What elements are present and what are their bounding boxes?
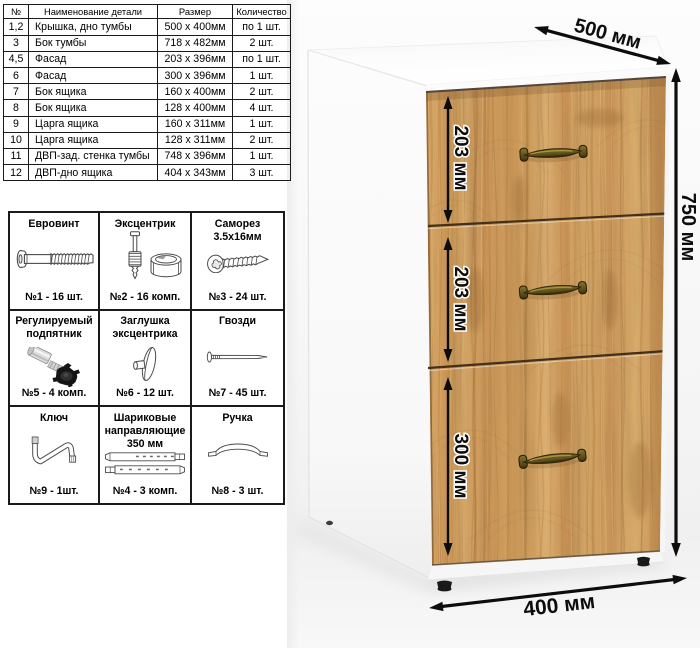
- svg-text:203 мм: 203 мм: [450, 266, 471, 331]
- svg-text:300 мм: 300 мм: [450, 433, 471, 498]
- svg-text:203 мм: 203 мм: [450, 125, 471, 190]
- svg-text:750 мм: 750 мм: [677, 193, 699, 262]
